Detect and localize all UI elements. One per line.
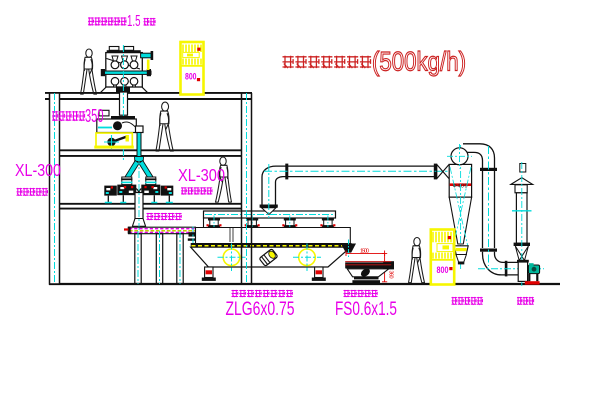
- svg-text:800: 800: [185, 72, 197, 83]
- svg-text:FS0.6x1.5: FS0.6x1.5: [335, 298, 397, 320]
- svg-text:(500kg/h): (500kg/h): [372, 47, 466, 77]
- svg-text:360: 360: [388, 271, 394, 279]
- svg-text:XL-300: XL-300: [15, 160, 61, 180]
- svg-text:800: 800: [437, 265, 449, 276]
- svg-text:XL-300: XL-300: [178, 165, 225, 185]
- svg-text:1.5: 1.5: [127, 13, 141, 30]
- svg-text:350: 350: [85, 106, 104, 126]
- svg-text:ZLG6x0.75: ZLG6x0.75: [226, 298, 295, 320]
- svg-text:1500: 1500: [360, 248, 369, 254]
